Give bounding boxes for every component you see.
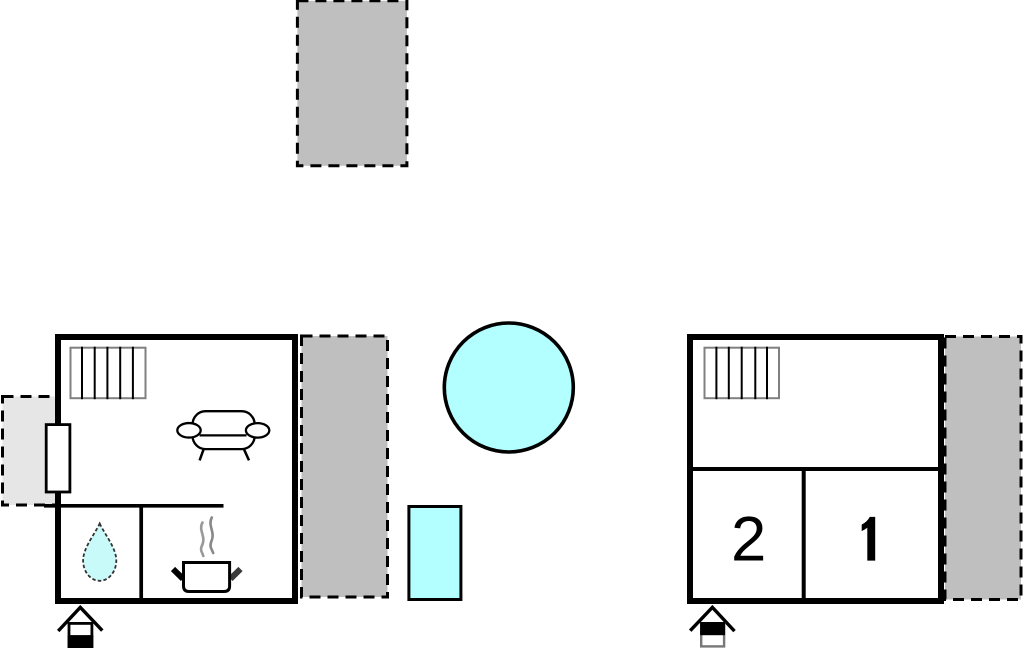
svg-text:2: 2 (731, 505, 766, 575)
